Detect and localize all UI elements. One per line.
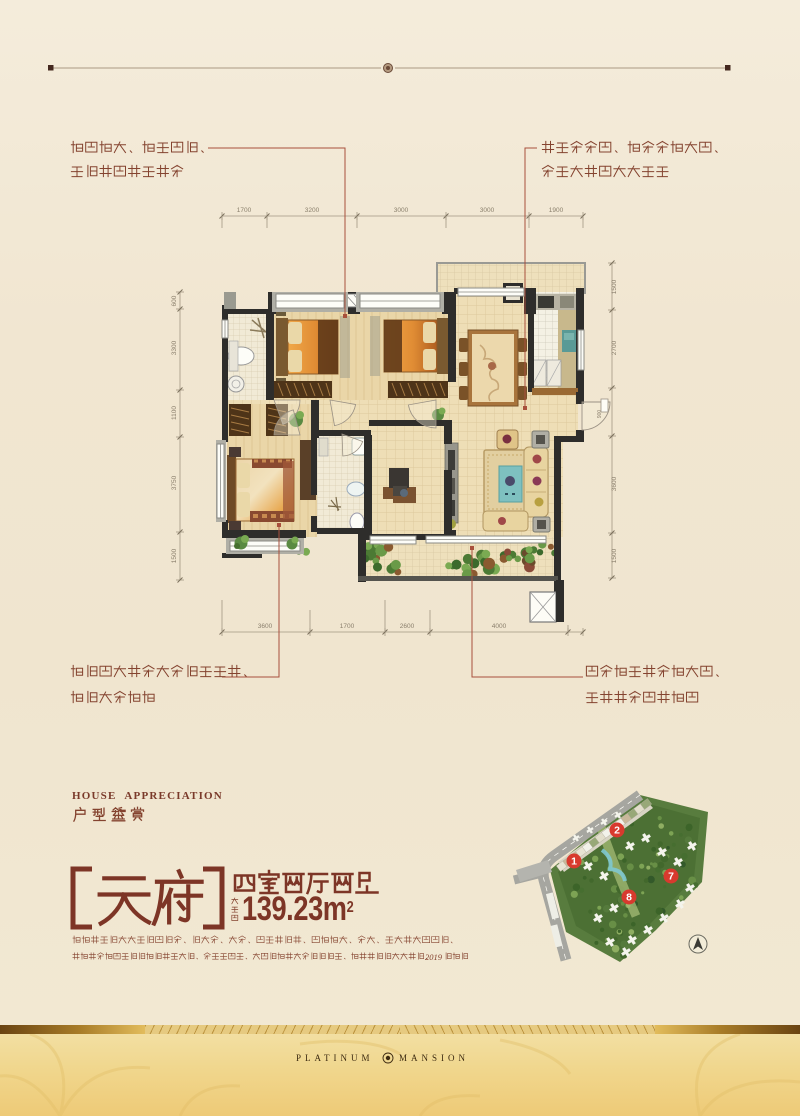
svg-text:2600: 2600 [400, 623, 415, 630]
svg-text:1900: 1900 [549, 207, 564, 214]
svg-text:3200: 3200 [305, 207, 320, 214]
svg-text:4000: 4000 [492, 623, 507, 630]
svg-text:1700: 1700 [340, 623, 355, 630]
svg-text:2: 2 [614, 825, 620, 837]
svg-text:3750: 3750 [171, 475, 178, 490]
svg-text:600: 600 [171, 295, 178, 306]
svg-text:1100: 1100 [171, 406, 178, 420]
svg-text:900: 900 [597, 410, 603, 419]
svg-text:1500: 1500 [611, 548, 618, 563]
svg-text:2700: 2700 [611, 340, 618, 355]
svg-text:3600: 3600 [611, 476, 618, 491]
svg-text:1500: 1500 [171, 548, 178, 563]
svg-text:1500: 1500 [611, 279, 618, 294]
svg-text:3300: 3300 [171, 340, 178, 355]
svg-text:1: 1 [571, 856, 577, 868]
svg-text:3000: 3000 [394, 207, 409, 214]
svg-text:3600: 3600 [258, 623, 273, 630]
svg-text:7: 7 [668, 871, 674, 883]
svg-text:PLATINUM: PLATINUM [296, 1053, 374, 1063]
svg-text:3000: 3000 [480, 207, 495, 214]
svg-text:2019: 2019 [425, 952, 443, 962]
svg-text:1700: 1700 [237, 207, 252, 214]
svg-text:8: 8 [626, 892, 632, 904]
svg-text:MANSION: MANSION [399, 1053, 469, 1063]
